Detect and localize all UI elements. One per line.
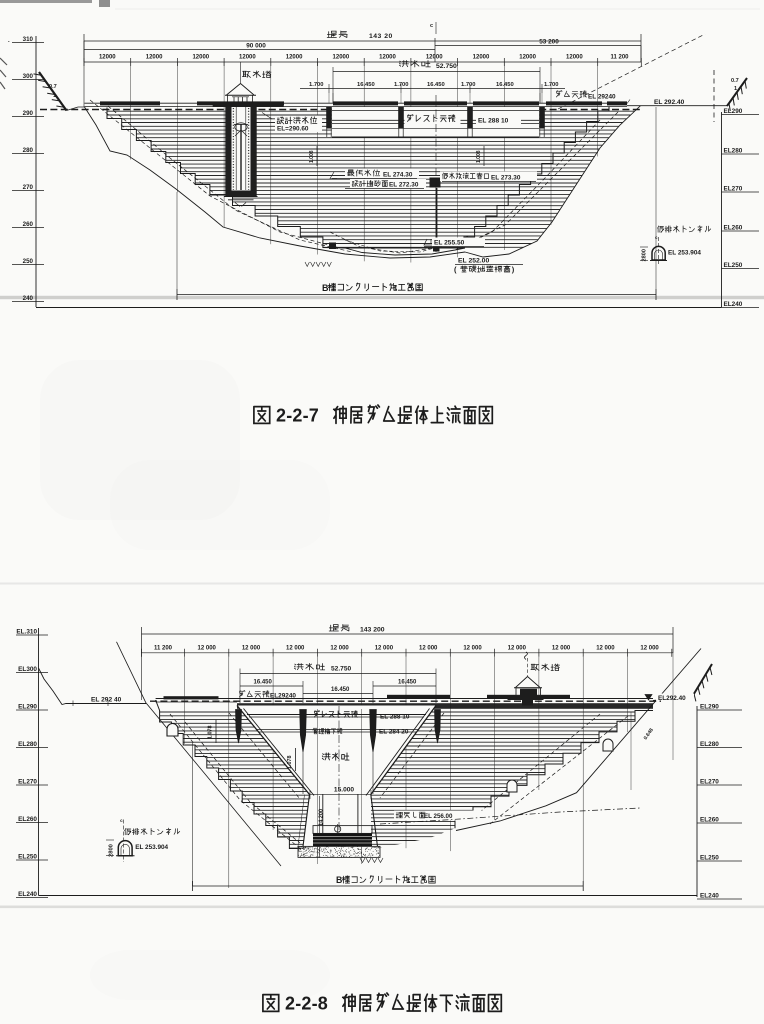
svg-text:2800: 2800	[642, 249, 648, 261]
svg-text:12 000: 12 000	[242, 646, 261, 652]
svg-text:12000: 12000	[333, 55, 350, 61]
svg-text:90 000: 90 000	[246, 43, 266, 50]
svg-text:52.750: 52.750	[331, 666, 352, 673]
svg-text:143 200: 143 200	[360, 627, 385, 634]
svg-text:EL260: EL260	[18, 816, 37, 823]
svg-text:EL280: EL280	[700, 741, 719, 748]
svg-text:EL 292 40: EL 292 40	[91, 697, 122, 704]
svg-text:EL240: EL240	[18, 891, 37, 898]
svg-text:12000: 12000	[473, 55, 490, 61]
svg-text:EL270: EL270	[700, 779, 719, 786]
svg-text:11 200: 11 200	[610, 55, 629, 61]
svg-text:1: 1	[734, 86, 737, 92]
svg-text:12000: 12000	[146, 55, 163, 61]
svg-text:EL250: EL250	[700, 855, 719, 862]
svg-text:2800: 2800	[109, 844, 115, 857]
svg-text:EL 29240: EL 29240	[588, 94, 616, 101]
svg-text:EL250: EL250	[18, 854, 37, 861]
svg-text:12 000: 12 000	[640, 646, 659, 652]
svg-text:16.450: 16.450	[357, 82, 375, 88]
svg-text:1.700: 1.700	[461, 82, 476, 88]
svg-text:12000: 12000	[99, 55, 116, 61]
svg-text:300: 300	[23, 73, 34, 80]
svg-text:12000: 12000	[566, 55, 583, 61]
svg-text:EL280: EL280	[18, 741, 37, 748]
svg-text:EL 292.40: EL 292.40	[654, 99, 685, 106]
svg-text:1.008: 1.008	[476, 150, 482, 163]
svg-text:16.450: 16.450	[398, 680, 417, 686]
svg-text:2-2-8: 2-2-8	[285, 994, 328, 1014]
svg-text:EL240: EL240	[724, 301, 743, 308]
svg-text:52.750: 52.750	[436, 63, 457, 70]
svg-text:12000: 12000	[426, 55, 443, 61]
svg-text:143 20: 143 20	[369, 33, 393, 40]
svg-text:250: 250	[23, 258, 34, 265]
svg-text:B: B	[322, 283, 329, 293]
svg-text:310: 310	[23, 36, 34, 43]
svg-text:16.450: 16.450	[254, 680, 273, 686]
svg-text:1: 1	[53, 93, 56, 99]
svg-text:EL300: EL300	[18, 666, 37, 673]
svg-text:12 000: 12 000	[508, 646, 527, 652]
svg-text:1.078: 1.078	[287, 756, 293, 770]
svg-text:270: 270	[23, 184, 34, 191]
svg-text:EL290: EL290	[700, 704, 719, 711]
svg-text:16.450: 16.450	[427, 82, 445, 88]
svg-text:1.700: 1.700	[394, 82, 409, 88]
svg-text:16.450: 16.450	[331, 687, 350, 693]
svg-text:EL 253.904: EL 253.904	[668, 250, 701, 257]
svg-text:EL290: EL290	[724, 108, 743, 115]
svg-text:16.450: 16.450	[496, 82, 514, 88]
svg-text:12 000: 12 000	[286, 646, 305, 652]
svg-text:EL 252.00: EL 252.00	[458, 258, 489, 265]
svg-text:12 000: 12 000	[596, 646, 615, 652]
svg-text:12000: 12000	[286, 55, 303, 61]
svg-text:EL 288 10: EL 288 10	[380, 714, 410, 721]
svg-text:c: c	[430, 23, 433, 29]
svg-text:1.700: 1.700	[309, 82, 324, 88]
svg-text:EL270: EL270	[18, 779, 37, 786]
svg-text:EL 272.30: EL 272.30	[389, 182, 419, 189]
svg-text:B: B	[336, 875, 342, 885]
svg-text:12 000: 12 000	[552, 646, 571, 652]
svg-text:1.008: 1.008	[309, 150, 315, 163]
svg-text:EL 255.50: EL 255.50	[434, 240, 465, 247]
svg-text:12 000: 12 000	[375, 646, 394, 652]
svg-text:260: 260	[23, 221, 34, 228]
svg-text:EL240: EL240	[700, 893, 719, 900]
svg-text:EL 256.00: EL 256.00	[424, 813, 453, 820]
svg-text:12000: 12000	[379, 55, 396, 61]
svg-text:0.7: 0.7	[49, 84, 57, 90]
svg-text:12 000: 12 000	[198, 646, 217, 652]
svg-text:11 200: 11 200	[154, 646, 173, 652]
svg-text:2-2-7: 2-2-7	[276, 406, 319, 426]
svg-text:EL 288 10: EL 288 10	[478, 118, 509, 125]
svg-text:EL 274.30: EL 274.30	[383, 172, 413, 179]
svg-text:EL260: EL260	[724, 225, 743, 232]
svg-text:EL280: EL280	[724, 148, 743, 155]
svg-text:53 200: 53 200	[539, 39, 559, 46]
svg-text:280: 280	[23, 147, 34, 154]
svg-text:EL 284 20: EL 284 20	[379, 729, 409, 736]
svg-text:12 000: 12 000	[463, 646, 482, 652]
svg-text:EL260: EL260	[700, 817, 719, 824]
svg-text:EL250: EL250	[724, 262, 743, 269]
svg-text:EL290: EL290	[18, 704, 37, 711]
svg-text:EL 273.30: EL 273.30	[491, 175, 521, 182]
svg-text:14.200: 14.200	[319, 809, 325, 826]
svg-text:1.700: 1.700	[544, 82, 559, 88]
svg-text:12000: 12000	[239, 55, 256, 61]
svg-text:12000: 12000	[519, 55, 536, 61]
svg-text:12000: 12000	[192, 55, 209, 61]
svg-text:EL=290.60: EL=290.60	[277, 126, 309, 133]
svg-text:0.7: 0.7	[731, 78, 739, 84]
svg-text:12 000: 12 000	[330, 646, 349, 652]
svg-text:15.000: 15.000	[334, 787, 355, 794]
svg-text:EL270: EL270	[724, 186, 743, 193]
svg-text:EL 253.904: EL 253.904	[135, 844, 168, 851]
svg-text:12 000: 12 000	[419, 646, 438, 652]
svg-text:290: 290	[23, 110, 34, 117]
svg-text:EL.310: EL.310	[16, 629, 37, 636]
svg-text:1.078: 1.078	[208, 726, 214, 740]
svg-text:240: 240	[23, 295, 34, 302]
svg-text:EL292.40: EL292.40	[658, 695, 686, 702]
